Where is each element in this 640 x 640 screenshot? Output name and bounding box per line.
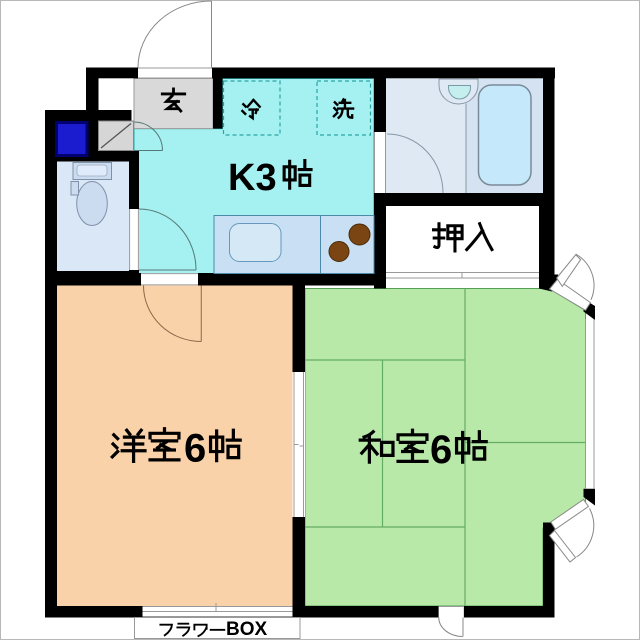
svg-text:K3: K3 [228,157,277,199]
svg-text:BOX: BOX [226,619,268,640]
svg-text:6: 6 [430,428,452,472]
svg-text:6: 6 [184,427,206,471]
